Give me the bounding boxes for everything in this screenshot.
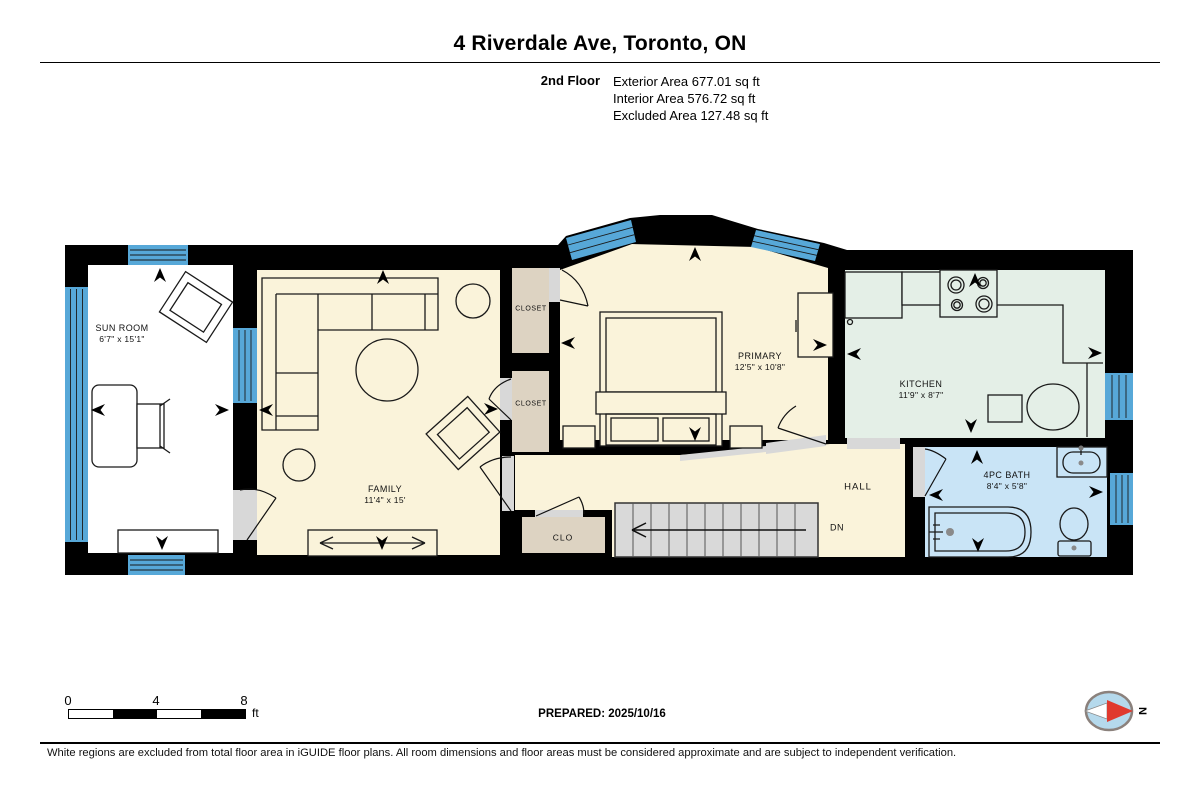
dining-table (1027, 384, 1079, 430)
compass-icon (1085, 692, 1133, 730)
console-table (118, 530, 218, 553)
dresser (796, 293, 833, 357)
opening-kitchen-hall (847, 438, 900, 449)
label-primary: PRIMARY 12'5" x 10'8" (735, 351, 786, 373)
scale-tick-0: 0 (64, 693, 71, 708)
stove (940, 270, 997, 317)
staircase (615, 503, 818, 557)
nightstand-right (730, 426, 762, 448)
footer-divider (40, 742, 1160, 744)
door-hall-bath (913, 447, 925, 497)
label-family: FAMILY 11'4" x 15' (364, 484, 406, 506)
disclaimer-text: White regions are excluded from total fl… (47, 747, 1167, 759)
label-kitchen: KITCHEN 11'9" x 8'7" (899, 379, 944, 401)
door-family-hall (502, 456, 514, 511)
window-bath-right (1110, 473, 1133, 525)
toilet (1058, 508, 1091, 556)
ottoman (456, 284, 490, 318)
side-table (283, 449, 315, 481)
window-sunroom-bottom (128, 555, 185, 575)
window-kitchen-right (1105, 373, 1133, 420)
kitchen-side-table (988, 395, 1022, 422)
window-sunroom-top (128, 245, 188, 265)
floorplan-page: { "header": { "title": "4 Riverdale Ave,… (0, 0, 1200, 805)
nightstand-left (563, 426, 595, 448)
compass-north-label: N (1136, 707, 1148, 715)
door-closet-upper (549, 268, 560, 302)
door-closet-lower (500, 378, 512, 420)
label-sun-room: SUN ROOM 6'7" x 15'1" (95, 323, 148, 345)
desk (92, 385, 137, 467)
label-hall: HALL (844, 482, 872, 493)
floorplan-canvas (0, 0, 1200, 805)
bathtub (929, 507, 1031, 557)
label-closet-upper: CLOSET (515, 304, 547, 315)
label-bath: 4PC BATH 8'4" x 5'8" (984, 470, 1031, 492)
bathroom-sink (1057, 446, 1107, 478)
closet-lower-floor (512, 371, 549, 452)
window-sunroom-left (65, 287, 88, 542)
scale-unit: ft (252, 706, 259, 720)
label-closet-lower: CLOSET (515, 399, 547, 410)
door-sunroom-family (233, 490, 257, 540)
scale-tick-4: 4 (152, 693, 159, 708)
bench (308, 530, 437, 556)
bed (596, 312, 726, 446)
label-stairs-dn: DN (830, 523, 844, 534)
scale-tick-8: 8 (240, 693, 247, 708)
prepared-date: PREPARED: 2025/10/16 (538, 708, 666, 720)
label-clo: CLO (553, 533, 573, 544)
window-sunroom-family (233, 328, 257, 403)
scale-bar (68, 709, 246, 719)
coffee-table (356, 339, 418, 401)
